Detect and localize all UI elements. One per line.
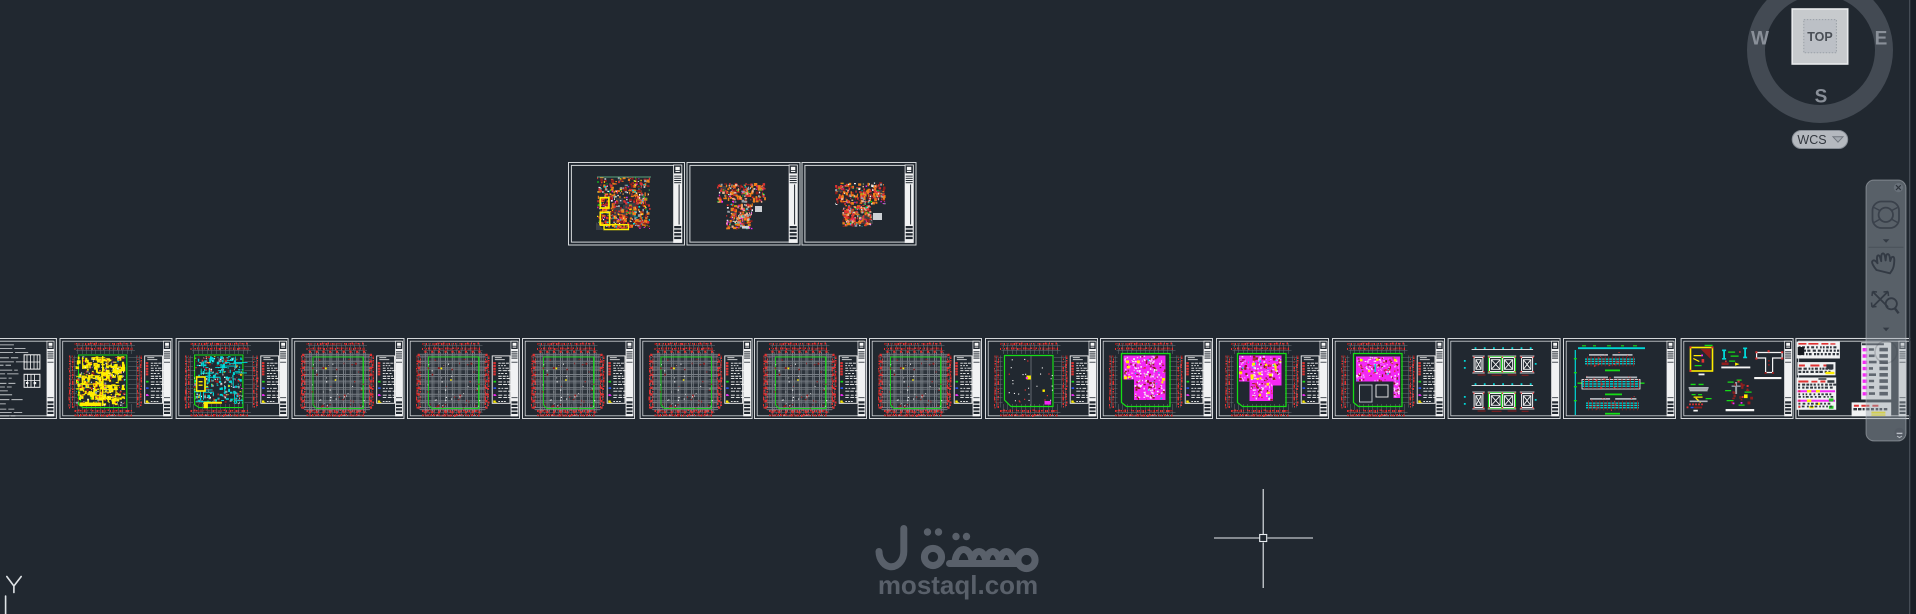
svg-text:TOP: TOP bbox=[1807, 30, 1832, 44]
svg-text:S: S bbox=[1815, 87, 1828, 108]
svg-text:E: E bbox=[1875, 29, 1888, 50]
svg-text:mostaql.com: mostaql.com bbox=[878, 570, 1038, 600]
svg-text:WCS: WCS bbox=[1797, 133, 1826, 147]
svg-text:W: W bbox=[1751, 29, 1769, 50]
